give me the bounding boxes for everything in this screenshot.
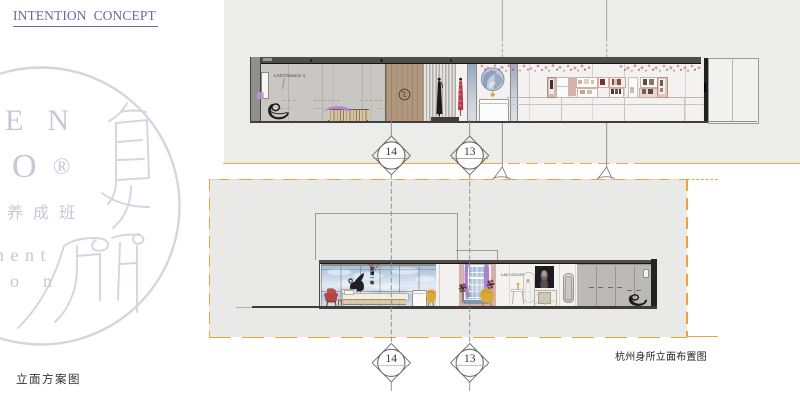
svg-text:®: ® <box>53 154 70 179</box>
svg-text:14: 14 <box>386 353 398 365</box>
svg-text:EN: EN <box>5 104 93 137</box>
svg-text:ment: ment <box>0 245 52 265</box>
svg-text:养成班: 养成班 <box>7 204 85 222</box>
svg-text:on: on <box>10 271 76 291</box>
svg-text:14: 14 <box>386 146 398 158</box>
svg-text:13: 13 <box>464 353 476 365</box>
svg-text:13: 13 <box>464 146 476 158</box>
svg-text:O: O <box>12 148 37 185</box>
